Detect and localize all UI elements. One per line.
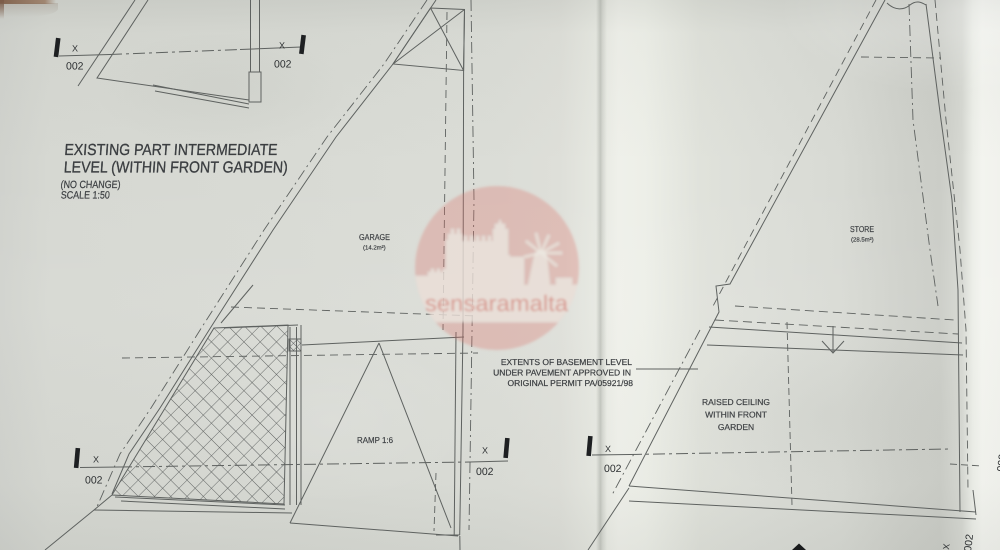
- svg-text:LEVEL (WITHIN FRONT GARDEN): LEVEL (WITHIN FRONT GARDEN): [63, 160, 288, 177]
- svg-text:(28.5m²): (28.5m²): [851, 237, 874, 244]
- svg-text:GARAGE: GARAGE: [359, 232, 390, 242]
- svg-text:ORIGINAL PERMIT PA/05921/98: ORIGINAL PERMIT PA/05921/98: [507, 378, 633, 388]
- svg-text:WITHIN FRONT: WITHIN FRONT: [705, 410, 767, 420]
- svg-text:X: X: [605, 444, 611, 454]
- svg-text:X: X: [93, 455, 99, 465]
- svg-text:002: 002: [66, 61, 84, 73]
- svg-text:002: 002: [604, 463, 622, 475]
- svg-text:X: X: [72, 44, 78, 54]
- svg-text:(14.2m²): (14.2m²): [363, 245, 386, 252]
- svg-text:X: X: [482, 446, 488, 456]
- svg-text:SCALE 1:50: SCALE 1:50: [60, 190, 110, 202]
- svg-text:002: 002: [274, 59, 292, 71]
- svg-text:UNDER PAVEMENT APPROVED IN: UNDER PAVEMENT APPROVED IN: [493, 368, 631, 378]
- svg-text:002: 002: [995, 453, 1000, 472]
- svg-text:EXTENTS OF BASEMENT LEVEL: EXTENTS OF BASEMENT LEVEL: [501, 357, 632, 367]
- svg-text:X: X: [941, 543, 952, 550]
- svg-text:GARDEN: GARDEN: [718, 422, 754, 432]
- svg-text:sensaramalta: sensaramalta: [425, 291, 569, 316]
- svg-text:002: 002: [476, 466, 494, 478]
- svg-text:002: 002: [85, 475, 103, 487]
- svg-text:EXISTING PART INTERMEDIATE: EXISTING PART INTERMEDIATE: [64, 142, 278, 159]
- svg-text:RAMP 1:6: RAMP 1:6: [357, 435, 393, 445]
- svg-text:STORE: STORE: [850, 224, 874, 234]
- svg-text:002: 002: [962, 533, 976, 550]
- svg-text:X: X: [279, 41, 285, 51]
- svg-text:RAISED CEILING: RAISED CEILING: [702, 397, 770, 407]
